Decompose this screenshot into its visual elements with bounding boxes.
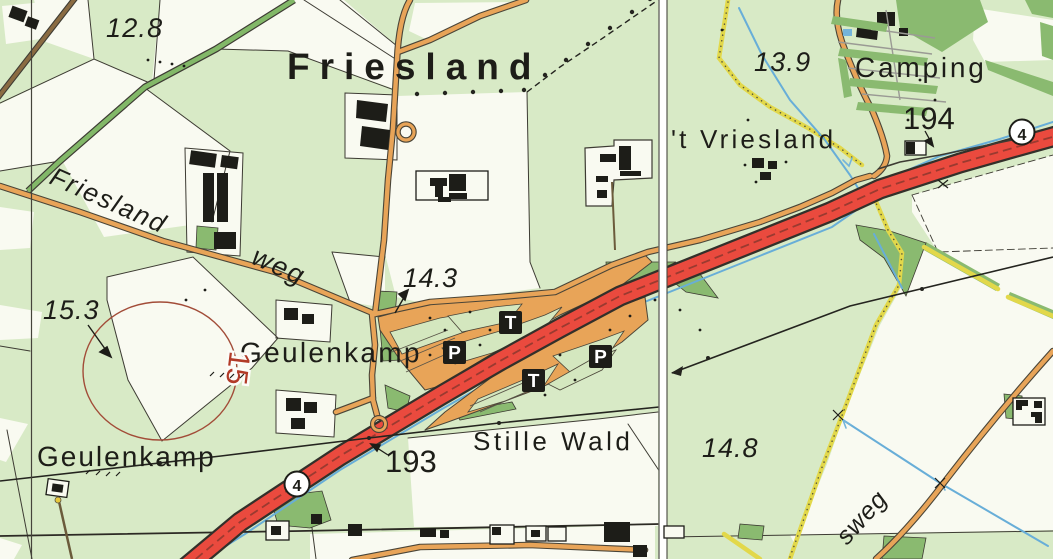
svg-text:Stille Wald: Stille Wald: [473, 426, 633, 456]
svg-text:12.8: 12.8: [106, 13, 163, 43]
svg-text:15: 15: [219, 350, 256, 387]
svg-text:P: P: [594, 347, 607, 368]
svg-text:14.8: 14.8: [702, 433, 759, 463]
svg-text:Friesland: Friesland: [287, 46, 542, 87]
svg-text:4: 4: [1018, 127, 1027, 144]
svg-text:Camping: Camping: [855, 52, 987, 83]
svg-text:Geulenkamp: Geulenkamp: [240, 337, 422, 368]
svg-text:194: 194: [903, 101, 955, 136]
svg-text:Geulenkamp: Geulenkamp: [37, 441, 216, 472]
svg-text:'t Vriesland: 't Vriesland: [671, 124, 836, 154]
svg-text:4: 4: [293, 478, 302, 495]
svg-text:T: T: [505, 313, 517, 334]
svg-text:13.9: 13.9: [754, 47, 811, 77]
svg-text:14.3: 14.3: [403, 263, 458, 293]
svg-text:15.3: 15.3: [43, 295, 100, 325]
svg-text:T: T: [528, 371, 540, 392]
svg-text:P: P: [448, 343, 461, 364]
svg-text:193: 193: [385, 444, 437, 479]
